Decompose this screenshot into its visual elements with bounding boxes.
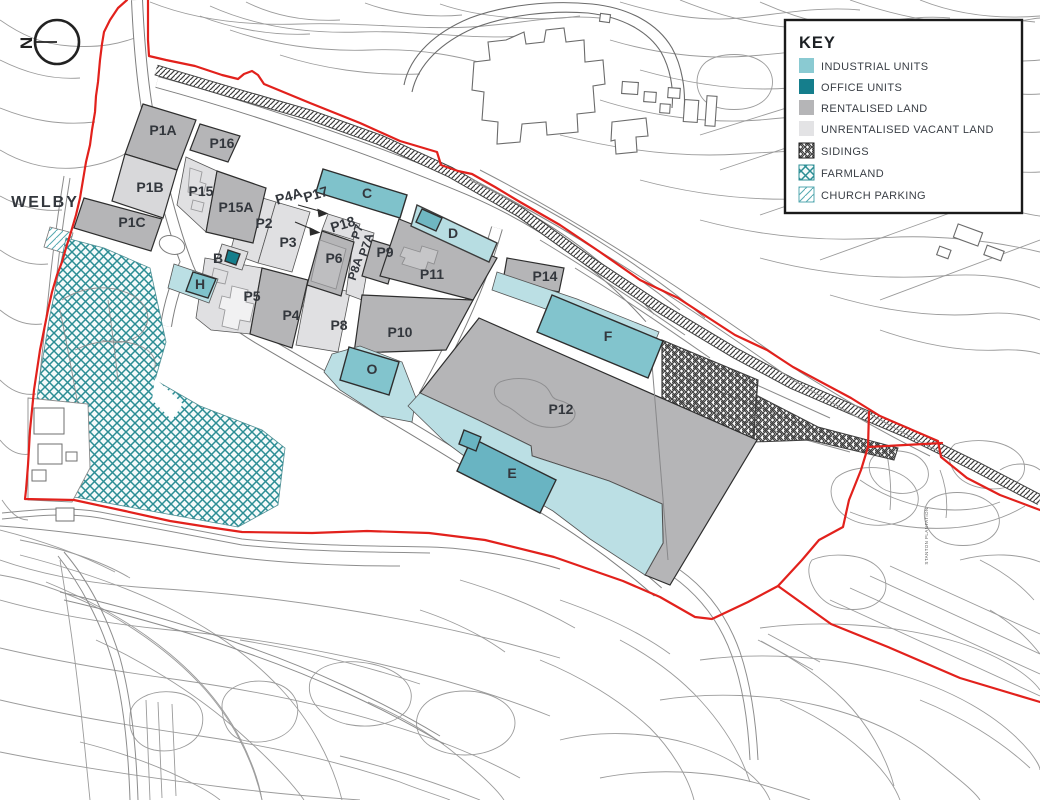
- svg-text:D: D: [448, 225, 458, 241]
- svg-text:H: H: [195, 276, 205, 292]
- svg-text:P3: P3: [279, 234, 296, 250]
- svg-text:UNRENTALISED VACANT LAND: UNRENTALISED VACANT LAND: [821, 124, 994, 136]
- svg-text:P12: P12: [549, 401, 574, 417]
- svg-text:OFFICE UNITS: OFFICE UNITS: [821, 82, 902, 94]
- svg-text:P10: P10: [388, 324, 413, 340]
- svg-text:INDUSTRIAL UNITS: INDUSTRIAL UNITS: [821, 61, 928, 73]
- svg-text:N: N: [17, 37, 36, 49]
- svg-text:P5: P5: [243, 288, 260, 304]
- svg-text:KEY: KEY: [799, 34, 836, 52]
- svg-text:P16: P16: [210, 135, 235, 151]
- svg-text:P14: P14: [533, 268, 558, 284]
- svg-text:FARMLAND: FARMLAND: [821, 168, 884, 180]
- svg-text:CHURCH PARKING: CHURCH PARKING: [821, 190, 926, 202]
- svg-text:P1A: P1A: [149, 122, 176, 138]
- svg-text:WELBY: WELBY: [11, 194, 79, 211]
- svg-text:P4: P4: [282, 307, 299, 323]
- svg-text:P8: P8: [330, 317, 347, 333]
- svg-text:RENTALISED LAND: RENTALISED LAND: [821, 103, 928, 115]
- svg-text:P1B: P1B: [136, 179, 163, 195]
- svg-text:B: B: [213, 250, 223, 266]
- svg-text:STANTON PLANTATION: STANTON PLANTATION: [924, 507, 929, 564]
- svg-text:P2: P2: [255, 215, 272, 231]
- svg-text:O: O: [367, 361, 378, 377]
- svg-text:P15: P15: [189, 183, 214, 199]
- svg-text:F: F: [604, 328, 613, 344]
- svg-text:P11: P11: [420, 266, 444, 282]
- svg-text:P1C: P1C: [118, 214, 145, 230]
- svg-text:C: C: [362, 185, 372, 201]
- svg-text:P9: P9: [376, 244, 393, 260]
- svg-text:P15A: P15A: [218, 199, 253, 215]
- svg-text:P6: P6: [325, 250, 342, 266]
- svg-text:SIDINGS: SIDINGS: [821, 146, 869, 158]
- svg-text:E: E: [507, 465, 516, 481]
